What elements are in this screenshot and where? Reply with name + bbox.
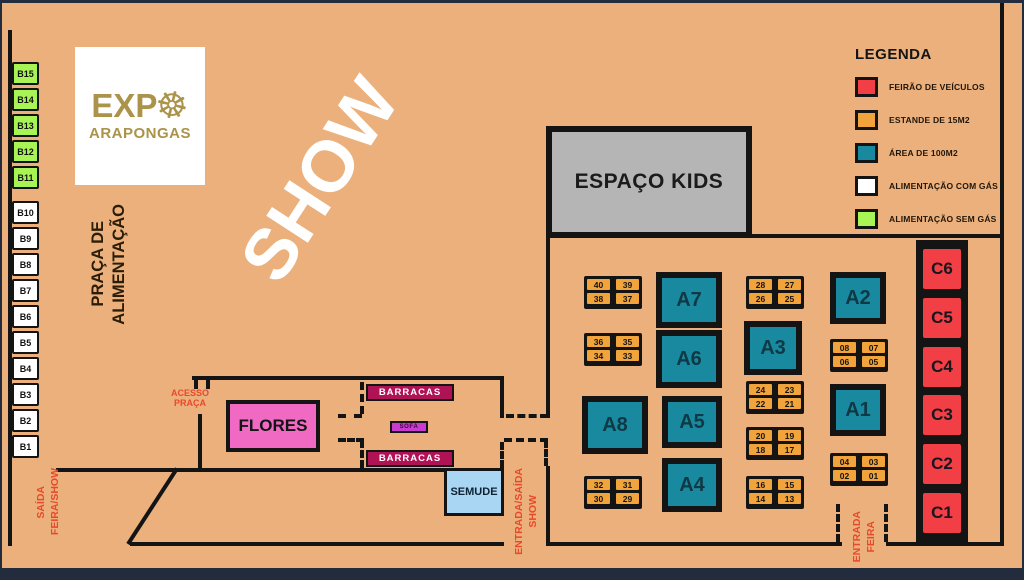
stand-chip: 21 bbox=[778, 398, 801, 409]
stand-group-24-21: 24 23 22 21 bbox=[746, 381, 804, 414]
area-a4: A4 bbox=[662, 458, 722, 512]
stand-chip: 30 bbox=[587, 493, 610, 504]
wall-bottom-a-east bbox=[886, 542, 1002, 546]
legend-item: FEIRÃO DE VEÍCULOS bbox=[855, 77, 1017, 97]
area-a7: A7 bbox=[656, 272, 722, 328]
area-a5: A5 bbox=[662, 396, 722, 448]
booth-c6: C6 bbox=[923, 249, 961, 289]
booth-b6: B6 bbox=[12, 305, 39, 328]
legend: LEGENDA FEIRÃO DE VEÍCULOS ESTANDE DE 15… bbox=[855, 46, 1017, 242]
area-a6: A6 bbox=[656, 330, 722, 388]
stand-chip: 14 bbox=[749, 493, 772, 504]
stand-chip: 40 bbox=[587, 279, 610, 290]
booth-b2: B2 bbox=[12, 409, 39, 432]
stand-chip: 24 bbox=[749, 384, 772, 395]
stand-group-40-37: 40 39 38 37 bbox=[584, 276, 642, 309]
stand-chip: 18 bbox=[749, 444, 772, 455]
stand-chip: 34 bbox=[587, 350, 610, 361]
booth-c1: C1 bbox=[923, 493, 961, 533]
booth-b13: B13 bbox=[12, 114, 39, 137]
stand-chip: 08 bbox=[833, 342, 856, 353]
booth-b11: B11 bbox=[12, 166, 39, 189]
wall-road-diagonal bbox=[126, 467, 178, 545]
entrada-feira-label: ENTRADA FEIRA bbox=[843, 498, 885, 576]
stand-chip: 35 bbox=[616, 336, 639, 347]
dashed-opening bbox=[360, 382, 364, 414]
wall-bottom-a-west bbox=[546, 542, 842, 546]
legend-swatch-food-com-gas bbox=[855, 176, 878, 196]
legend-title: LEGENDA bbox=[855, 46, 1017, 63]
stand-group-20-17: 20 19 18 17 bbox=[746, 427, 804, 460]
stand-chip: 22 bbox=[749, 398, 772, 409]
stand-chip: 02 bbox=[833, 470, 856, 481]
barracas-bottom: BARRACAS bbox=[366, 450, 454, 467]
legend-item: ALIMENTAÇÃO COM GÁS bbox=[855, 176, 1017, 196]
legend-item: ESTANDE DE 15M2 bbox=[855, 110, 1017, 130]
stand-chip: 28 bbox=[749, 279, 772, 290]
stand-chip: 29 bbox=[616, 493, 639, 504]
dashed-opening bbox=[504, 438, 548, 442]
stand-chip: 05 bbox=[862, 356, 885, 367]
booth-b12: B12 bbox=[12, 140, 39, 163]
frame-border-top bbox=[0, 0, 1024, 3]
stand-chip: 13 bbox=[778, 493, 801, 504]
wall-a-section-left-upper bbox=[546, 236, 550, 418]
area-a1: A1 bbox=[830, 384, 886, 436]
booth-c3: C3 bbox=[923, 395, 961, 435]
legend-item: ALIMENTAÇÃO SEM GÁS bbox=[855, 209, 1017, 229]
dashed-opening bbox=[360, 440, 364, 468]
stand-chip: 17 bbox=[778, 444, 801, 455]
stand-chip: 15 bbox=[778, 479, 801, 490]
dashed-opening bbox=[506, 414, 548, 418]
acesso-praca-label: ACESSO PRAÇA bbox=[166, 388, 214, 408]
stand-chip: 01 bbox=[862, 470, 885, 481]
praca-alimentacao-label: PRAÇA DE ALIMENTAÇÃO bbox=[78, 190, 140, 338]
wall-praca-left bbox=[198, 414, 202, 472]
dashed-opening bbox=[338, 414, 362, 418]
stand-chip: 38 bbox=[587, 293, 610, 304]
area-a8: A8 bbox=[582, 396, 648, 454]
dashed-opening-entrada-feira bbox=[836, 504, 840, 542]
legend-swatch-vehicle-fair bbox=[855, 77, 878, 97]
wall-street-right bbox=[500, 376, 504, 418]
wall-bottom-road bbox=[130, 542, 504, 546]
booth-b10: B10 bbox=[12, 201, 39, 224]
legend-swatch-area-100m2 bbox=[855, 143, 878, 163]
stand-chip: 39 bbox=[616, 279, 639, 290]
vehicle-fair-strip: C6 C5 C4 C3 C2 C1 bbox=[916, 240, 968, 542]
frame-border-left bbox=[0, 0, 2, 580]
area-a2: A2 bbox=[830, 272, 886, 324]
stand-chip: 37 bbox=[616, 293, 639, 304]
booth-b9: B9 bbox=[12, 227, 39, 250]
stand-group-04-01: 04 03 02 01 bbox=[830, 453, 888, 486]
sofa-stand: SOFÁ bbox=[390, 421, 428, 433]
booth-b5: B5 bbox=[12, 331, 39, 354]
stand-chip: 04 bbox=[833, 456, 856, 467]
wall-praca-bottom bbox=[56, 468, 446, 472]
stand-chip: 07 bbox=[862, 342, 885, 353]
booth-b7: B7 bbox=[12, 279, 39, 302]
booth-c4: C4 bbox=[923, 347, 961, 387]
area-a3: A3 bbox=[744, 321, 802, 375]
ferris-wheel-icon: ☸ bbox=[152, 87, 191, 124]
booth-b8: B8 bbox=[12, 253, 39, 276]
stand-chip: 36 bbox=[587, 336, 610, 347]
stand-chip: 19 bbox=[778, 430, 801, 441]
booth-c5: C5 bbox=[923, 298, 961, 338]
booth-b4: B4 bbox=[12, 357, 39, 380]
stand-group-16-13: 16 15 14 13 bbox=[746, 476, 804, 509]
saida-feira-show-label: SAÍDA FEIRA/SHOW bbox=[26, 452, 70, 552]
stand-chip: 20 bbox=[749, 430, 772, 441]
stand-group-32-29: 32 31 30 29 bbox=[584, 476, 642, 509]
stand-chip: 23 bbox=[778, 384, 801, 395]
stand-chip: 32 bbox=[587, 479, 610, 490]
booth-b3: B3 bbox=[12, 383, 39, 406]
stand-chip: 31 bbox=[616, 479, 639, 490]
legend-swatch-food-sem-gas bbox=[855, 209, 878, 229]
legend-item: ÁREA DE 100M2 bbox=[855, 143, 1017, 163]
stand-group-28-25: 28 27 26 25 bbox=[746, 276, 804, 309]
entrada-saida-show-label: ENTRADA/SAÍDA SHOW bbox=[504, 455, 548, 567]
stand-chip: 03 bbox=[862, 456, 885, 467]
stand-chip: 06 bbox=[833, 356, 856, 367]
stand-chip: 26 bbox=[749, 293, 772, 304]
booth-b14: B14 bbox=[12, 88, 39, 111]
logo-text-top: EXP☸ bbox=[91, 91, 188, 121]
semude-area: SEMUDE bbox=[444, 468, 504, 516]
booth-c2: C2 bbox=[923, 444, 961, 484]
expo-arapongas-map: EXP☸ ARAPONGAS SHOW PRAÇA DE ALIMENTAÇÃO… bbox=[0, 0, 1024, 580]
barracas-top: BARRACAS bbox=[366, 384, 454, 401]
stand-chip: 33 bbox=[616, 350, 639, 361]
stand-chip: 16 bbox=[749, 479, 772, 490]
espaco-kids-area: ESPAÇO KIDS bbox=[546, 126, 752, 238]
flores-area: FLORES bbox=[226, 400, 320, 452]
stand-group-36-33: 36 35 34 33 bbox=[584, 333, 642, 366]
stand-chip: 25 bbox=[778, 293, 801, 304]
wall-praca-top bbox=[192, 376, 504, 380]
stand-group-08-05: 08 07 06 05 bbox=[830, 339, 888, 372]
legend-swatch-stand-15m2 bbox=[855, 110, 878, 130]
stand-chip: 27 bbox=[778, 279, 801, 290]
booth-b15: B15 bbox=[12, 62, 39, 85]
